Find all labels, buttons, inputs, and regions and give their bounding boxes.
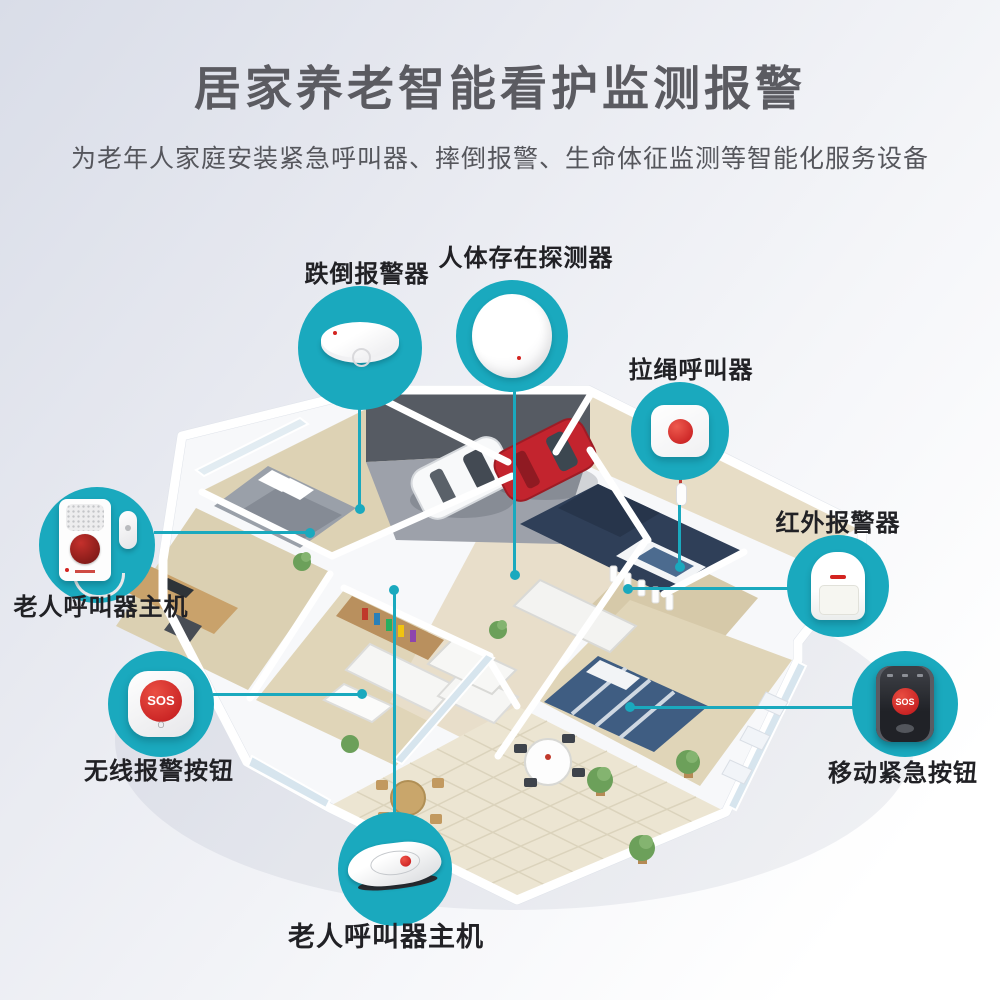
pull-cord-handle xyxy=(676,483,687,506)
pull-cord-caller-bubble xyxy=(631,382,729,480)
fall-alarm-label: 跌倒报警器 xyxy=(305,254,430,289)
caller-host-device-illustration xyxy=(55,499,139,591)
fall-alarm-connector xyxy=(358,409,361,508)
pull-cord-connector xyxy=(678,505,681,567)
infrared-alarm-label: 红外报警器 xyxy=(776,503,901,538)
mobile-button-device-illustration: SOS xyxy=(876,666,934,742)
wireless-button-device-illustration: SOS O xyxy=(128,671,194,737)
pull-cord-device-illustration xyxy=(651,405,709,457)
caller-host-left-anchor xyxy=(305,528,315,538)
wireless-button-connector xyxy=(213,693,362,696)
caller-host-bottom-connector xyxy=(393,589,396,813)
mobile-button-anchor xyxy=(625,702,635,712)
infrared-alarm-bubble xyxy=(787,535,889,637)
presence-detector-anchor xyxy=(510,570,520,580)
presence-detector-device-illustration xyxy=(472,294,552,378)
infrared-device-illustration xyxy=(811,552,865,620)
mobile-button-connector xyxy=(630,706,853,709)
caller-host-pod-illustration xyxy=(345,837,445,900)
infrared-connector xyxy=(628,587,788,590)
sos-button-face: SOS xyxy=(892,688,919,715)
pull-cord-anchor xyxy=(675,562,685,572)
presence-detector-connector xyxy=(513,391,516,574)
wireless-alarm-button-bubble: SOS O xyxy=(108,651,214,757)
caller-host-left-connector xyxy=(154,531,310,534)
sos-button-face: SOS xyxy=(140,680,182,722)
wireless-button-anchor xyxy=(357,689,367,699)
presence-detector-bubble xyxy=(456,280,568,392)
poster-canvas: 居家养老智能看护监测报警 为老年人家庭安装紧急呼叫器、摔倒报警、生命体征监测等智… xyxy=(0,0,1000,1000)
floorplan-illustration xyxy=(0,0,1000,1000)
caller-host-bottom-label: 老人呼叫器主机 xyxy=(288,915,484,954)
wireless-alarm-button-label: 无线报警按钮 xyxy=(84,751,234,786)
infrared-anchor xyxy=(623,584,633,594)
pull-cord-caller-label: 拉绳呼叫器 xyxy=(629,350,754,385)
caller-host-left-label: 老人呼叫器主机 xyxy=(14,587,189,622)
fall-alarm-bubble xyxy=(298,286,422,410)
fall-alarm-device-illustration xyxy=(321,322,399,374)
mobile-emergency-button-bubble: SOS xyxy=(852,651,958,757)
caller-host-left-bubble xyxy=(39,487,155,603)
mobile-emergency-button-label: 移动紧急按钮 xyxy=(828,753,978,788)
caller-host-bottom-bubble xyxy=(338,812,452,926)
caller-host-bottom-anchor xyxy=(389,585,399,595)
fall-alarm-anchor xyxy=(355,504,365,514)
presence-detector-label: 人体存在探测器 xyxy=(439,238,614,273)
